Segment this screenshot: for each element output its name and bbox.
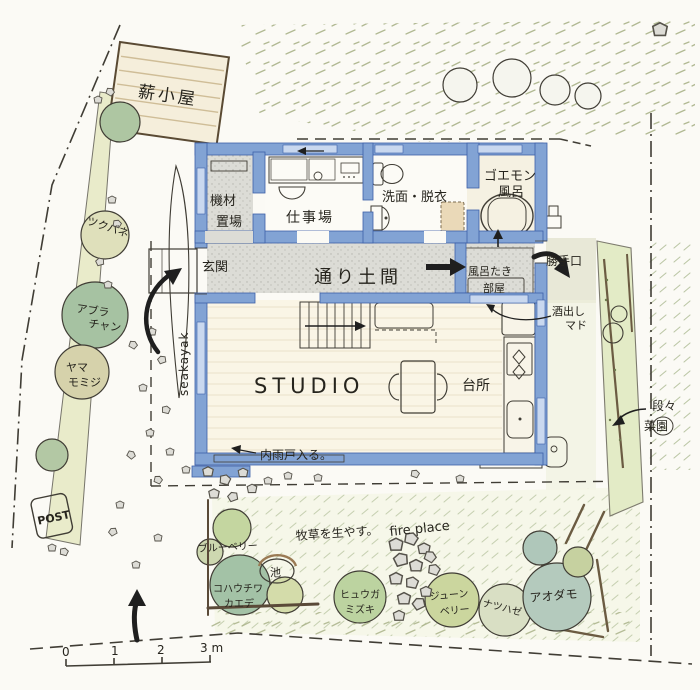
bush-4 — [575, 83, 601, 109]
scale-1: 1 — [111, 644, 119, 658]
label-kohauchiwa-2: カエデ — [224, 597, 254, 610]
bush-2 — [493, 59, 531, 97]
label-studio: STUDIO — [254, 374, 364, 398]
label-entrance: 玄関 — [202, 260, 228, 275]
tree-aodamo-small — [523, 531, 557, 565]
bush-1 — [443, 68, 477, 102]
scale-0: 0 — [62, 645, 70, 659]
label-boiler-room-1: 風呂たき — [468, 265, 512, 278]
label-terrace-1: 段々 — [652, 398, 676, 413]
label-sake-window-2: マド — [565, 319, 587, 332]
label-doma-corridor: 通り土間 — [314, 267, 402, 288]
label-goemon-bath-1: ゴエモン — [484, 168, 536, 184]
scale-3m: 3 m — [200, 641, 223, 655]
site-plan-drawing: 薪小屋 — [0, 0, 700, 690]
label-terrace-2: 菜園 — [644, 419, 668, 433]
label-boiler-room-2: 部屋 — [483, 281, 505, 295]
label-equipment-room-1: 機材 — [210, 194, 236, 209]
label-goemon-bath-2: 風呂 — [498, 185, 524, 200]
label-seakayak: seakayak — [177, 332, 191, 396]
bush-olive — [563, 547, 593, 577]
label-washroom: 洗面・脱衣 — [382, 189, 447, 205]
label-kohauchiwa-1: コハウチワ — [213, 583, 263, 595]
label-kitchen: 台所 — [462, 378, 490, 394]
plan-canvas: 薪小屋 — [0, 0, 700, 690]
washing-machine — [441, 202, 464, 232]
label-workshop: 仕事場 — [286, 210, 334, 226]
label-hyuga-2: ミズキ — [345, 603, 375, 616]
label-yamamomiji-2: モミジ — [68, 376, 101, 389]
label-equipment-room-2: 置場 — [216, 215, 242, 230]
label-inner-shutter: 内雨戸入る。 — [260, 448, 332, 462]
scale-2: 2 — [157, 643, 165, 657]
bush-3 — [540, 75, 570, 105]
label-hyuga-1: ヒュウガ — [340, 589, 380, 601]
label-yamamomiji-1: ヤマ — [66, 361, 88, 374]
label-back-door: 勝手口 — [546, 253, 582, 268]
tree-hedge-small — [36, 439, 68, 471]
tree-top-left — [100, 102, 140, 142]
label-sake-window-1: 酒出し — [552, 304, 585, 318]
label-pond: 池 — [270, 566, 281, 579]
